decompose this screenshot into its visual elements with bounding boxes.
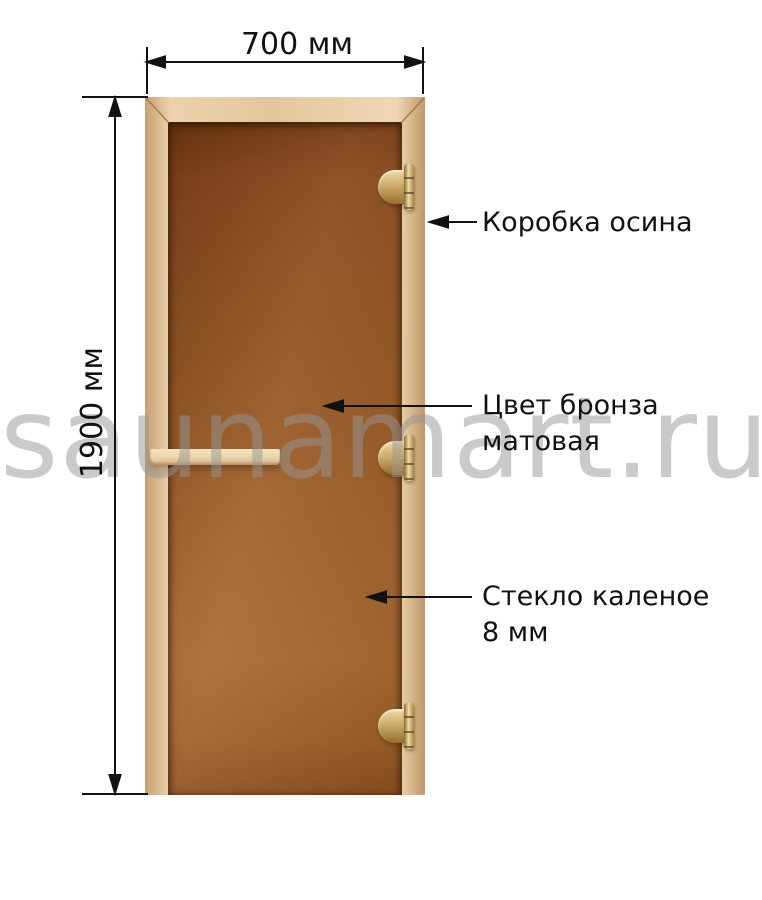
width-arrow-left xyxy=(147,57,165,68)
glass-spec-line1: Стекло каленое xyxy=(482,579,709,615)
glass-color-line2: матовая xyxy=(482,424,659,460)
glass-spec-callout-label: Стекло каленое 8 мм xyxy=(482,579,709,651)
frame-callout-line1: Коробка осина xyxy=(482,205,693,241)
height-dimension-text: 1900 мм xyxy=(77,346,110,477)
height-arrow-top xyxy=(110,98,121,116)
diagram-stage: saunamart.ru 70 xyxy=(0,0,762,900)
frame-callout-arrow xyxy=(430,217,448,228)
glass-spec-callout-arrow xyxy=(368,592,386,603)
width-dimension-label: 700 мм xyxy=(222,28,372,61)
glass-color-callout-arrow xyxy=(325,401,343,412)
miter-line-right xyxy=(401,98,424,123)
glass-color-callout-label: Цвет бронза матовая xyxy=(482,388,659,460)
glass-spec-line2: 8 мм xyxy=(482,615,709,651)
glass-color-line1: Цвет бронза xyxy=(482,388,659,424)
miter-line-left xyxy=(146,98,169,123)
frame-callout-label: Коробка осина xyxy=(482,205,693,241)
height-arrow-bottom xyxy=(110,775,121,793)
width-arrow-right xyxy=(405,57,423,68)
